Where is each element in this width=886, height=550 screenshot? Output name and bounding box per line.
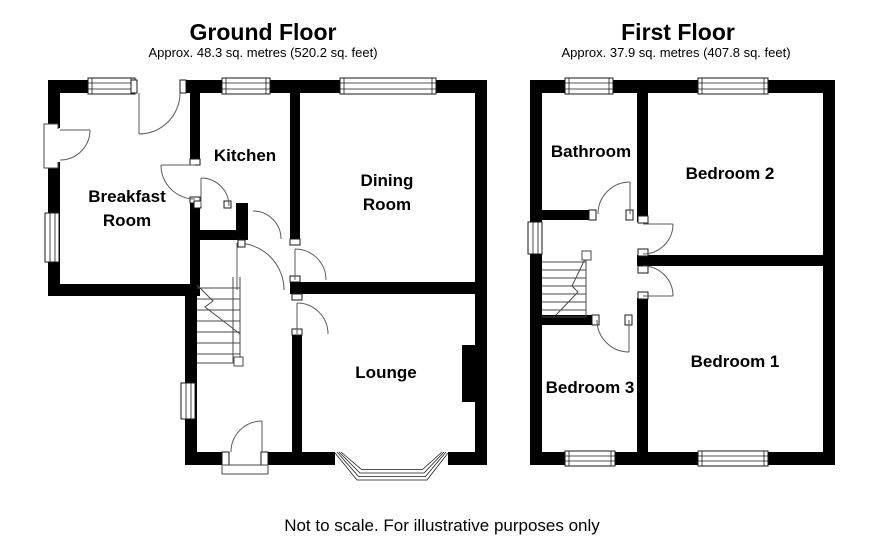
breakfast-left-window [45, 213, 59, 262]
bedroom2-top-window [698, 78, 768, 94]
room-label-breakfast-line1: Breakfast [88, 187, 166, 206]
room-label-kitchen: Kitchen [214, 146, 276, 165]
disclaimer-note: Not to scale. For illustrative purposes … [284, 516, 600, 535]
dining-top-window [340, 78, 436, 94]
room-label-bedroom3: Bedroom 3 [546, 378, 635, 397]
newel-post [582, 251, 591, 260]
floorplan-page: Ground Floor Approx. 48.3 sq. metres (52… [0, 0, 886, 550]
hall-left-window [181, 383, 195, 419]
kitchen-top-window [222, 78, 270, 94]
bedroom3-bottom-window [565, 451, 615, 466]
breakfast-top-window [88, 78, 135, 94]
room-label-bedroom1: Bedroom 1 [691, 352, 780, 371]
first-floor-area: Approx. 37.9 sq. metres (407.8 sq. feet) [561, 45, 790, 60]
landing-left-window [528, 222, 542, 254]
room-label-dining-line1: Dining [361, 171, 414, 190]
porch-step [222, 465, 268, 474]
ground-floor-area: Approx. 48.3 sq. metres (520.2 sq. feet) [148, 45, 377, 60]
room-label-bathroom: Bathroom [551, 142, 631, 161]
room-label-dining-line2: Room [363, 195, 411, 214]
room-label-lounge: Lounge [355, 363, 416, 382]
room-label-bedroom2: Bedroom 2 [686, 164, 775, 183]
newel-post [234, 357, 243, 366]
bathroom-top-window [565, 78, 613, 94]
first-floor-title: First Floor [621, 19, 735, 45]
room-label-breakfast-line2: Room [103, 211, 151, 230]
chimney-breast [462, 345, 475, 402]
floorplan-canvas: Ground Floor Approx. 48.3 sq. metres (52… [0, 0, 886, 550]
bedroom1-bottom-window [698, 451, 768, 466]
ground-floor-title: Ground Floor [190, 19, 337, 45]
